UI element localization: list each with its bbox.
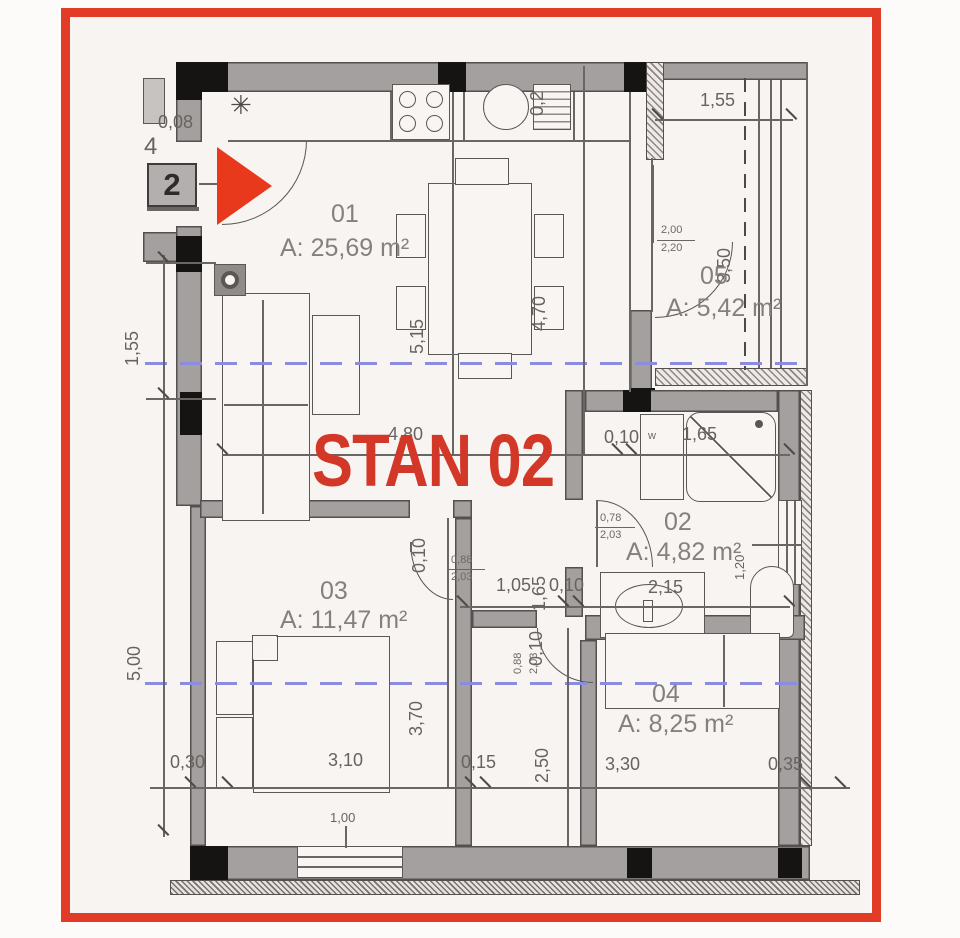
red-border-frame: [61, 8, 881, 922]
floor-plan-canvas: ✳: [0, 0, 960, 938]
